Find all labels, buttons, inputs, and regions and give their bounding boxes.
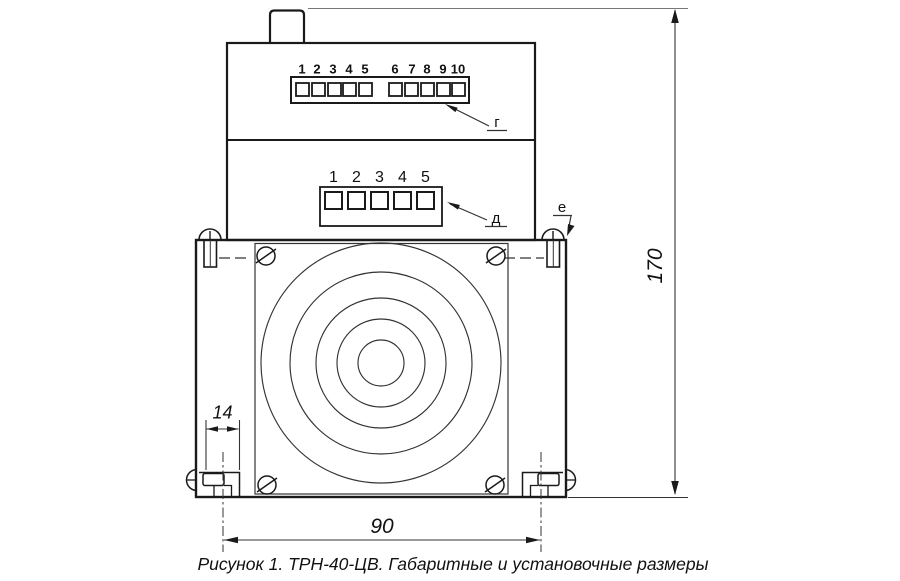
terminal-number: 4 bbox=[398, 169, 407, 186]
terminal-number: 2 bbox=[313, 62, 320, 77]
terminal-block-top: 1 2 3 4 5 6 7 8 9 10 г bbox=[291, 62, 507, 132]
panel-screw-icon bbox=[485, 476, 505, 494]
leader-arrowhead-icon bbox=[445, 104, 458, 112]
concentric-circles bbox=[261, 243, 501, 483]
technical-drawing: 1 2 3 4 5 6 7 8 9 10 г 1 2 bbox=[0, 0, 900, 581]
leader-label-g: г bbox=[494, 114, 500, 131]
terminal-cell bbox=[389, 83, 402, 96]
leader-g: г bbox=[445, 104, 507, 131]
dimension-arrowhead-icon bbox=[224, 537, 238, 543]
terminal-cell bbox=[371, 192, 388, 209]
terminal-number: 3 bbox=[329, 62, 336, 77]
terminal-cell bbox=[312, 83, 325, 96]
upper-housing bbox=[227, 43, 535, 240]
dimension-overall-height: 170 bbox=[308, 9, 688, 498]
leader-arrowhead-icon bbox=[567, 224, 575, 236]
leader-arrowhead-icon bbox=[447, 202, 460, 210]
terminal-cell bbox=[421, 83, 434, 96]
terminal-block-mid: 1 2 3 4 5 д bbox=[320, 169, 507, 227]
figure-canvas: 1 2 3 4 5 6 7 8 9 10 г 1 2 bbox=[0, 0, 900, 581]
terminal-number: 3 bbox=[375, 169, 384, 186]
terminal-number: 7 bbox=[408, 62, 415, 77]
dimension-arrowhead-icon bbox=[671, 9, 679, 23]
terminal-cell bbox=[348, 192, 365, 209]
terminal-number: 2 bbox=[352, 169, 361, 186]
foot-step bbox=[224, 486, 232, 498]
dimension-arrowhead-icon bbox=[526, 537, 540, 543]
dimension-value-170: 170 bbox=[644, 248, 667, 283]
screw-body bbox=[203, 474, 224, 486]
terminal-number: 9 bbox=[439, 62, 446, 77]
terminal-block-mid-numbers: 1 2 3 4 5 bbox=[329, 169, 430, 186]
terminal-cell bbox=[394, 192, 411, 209]
base-housing bbox=[196, 240, 566, 497]
terminal-number: 1 bbox=[298, 62, 305, 77]
terminal-block-top-cells bbox=[296, 83, 465, 96]
terminal-cell bbox=[328, 83, 341, 96]
terminal-cell bbox=[405, 83, 418, 96]
foot-step bbox=[531, 486, 539, 498]
panel-screw-icon bbox=[257, 476, 277, 494]
leader-e: е bbox=[553, 199, 575, 236]
terminal-cell bbox=[296, 83, 309, 96]
device-outline bbox=[196, 11, 566, 498]
dimension-arrowhead-icon bbox=[207, 426, 219, 432]
terminal-cell bbox=[325, 192, 342, 209]
mount-screw-top-left bbox=[199, 229, 248, 267]
top-protrusion bbox=[270, 11, 304, 44]
mount-foot-bottom-left bbox=[187, 452, 240, 552]
terminal-cell bbox=[359, 83, 372, 96]
mount-foot-bottom-right bbox=[523, 452, 576, 552]
figure-caption: Рисунок 1. ТРН-40-ЦВ. Габаритные и устан… bbox=[197, 554, 708, 574]
dimension-arrowhead-icon bbox=[671, 481, 679, 495]
panel-screw-icon bbox=[486, 247, 506, 265]
terminal-cell bbox=[417, 192, 434, 209]
terminal-cell bbox=[437, 83, 450, 96]
terminal-number: 5 bbox=[361, 62, 368, 77]
panel-screws bbox=[256, 247, 506, 494]
dimension-value-90: 90 bbox=[370, 515, 394, 538]
terminal-cell bbox=[343, 83, 356, 96]
terminal-cell bbox=[452, 83, 465, 96]
terminal-number: 1 bbox=[329, 169, 338, 186]
panel-screw-icon bbox=[256, 247, 276, 265]
terminal-block-top-numbers: 1 2 3 4 5 6 7 8 9 10 bbox=[298, 62, 465, 77]
terminal-number: 8 bbox=[423, 62, 430, 77]
terminal-number: 4 bbox=[345, 62, 353, 77]
leader-d: д bbox=[447, 202, 507, 227]
dimension-arrowhead-icon bbox=[227, 426, 239, 432]
dimension-value-14: 14 bbox=[212, 403, 232, 423]
leader-label-d: д bbox=[492, 210, 501, 227]
terminal-number: 6 bbox=[391, 62, 398, 77]
terminal-number: 10 bbox=[451, 62, 465, 77]
dimension-mounting-span: 90 bbox=[224, 515, 540, 543]
terminal-block-mid-cells bbox=[325, 192, 434, 209]
leader-label-e: е bbox=[558, 199, 566, 216]
terminal-block-top-frame bbox=[291, 77, 469, 103]
terminal-number: 5 bbox=[421, 169, 430, 186]
